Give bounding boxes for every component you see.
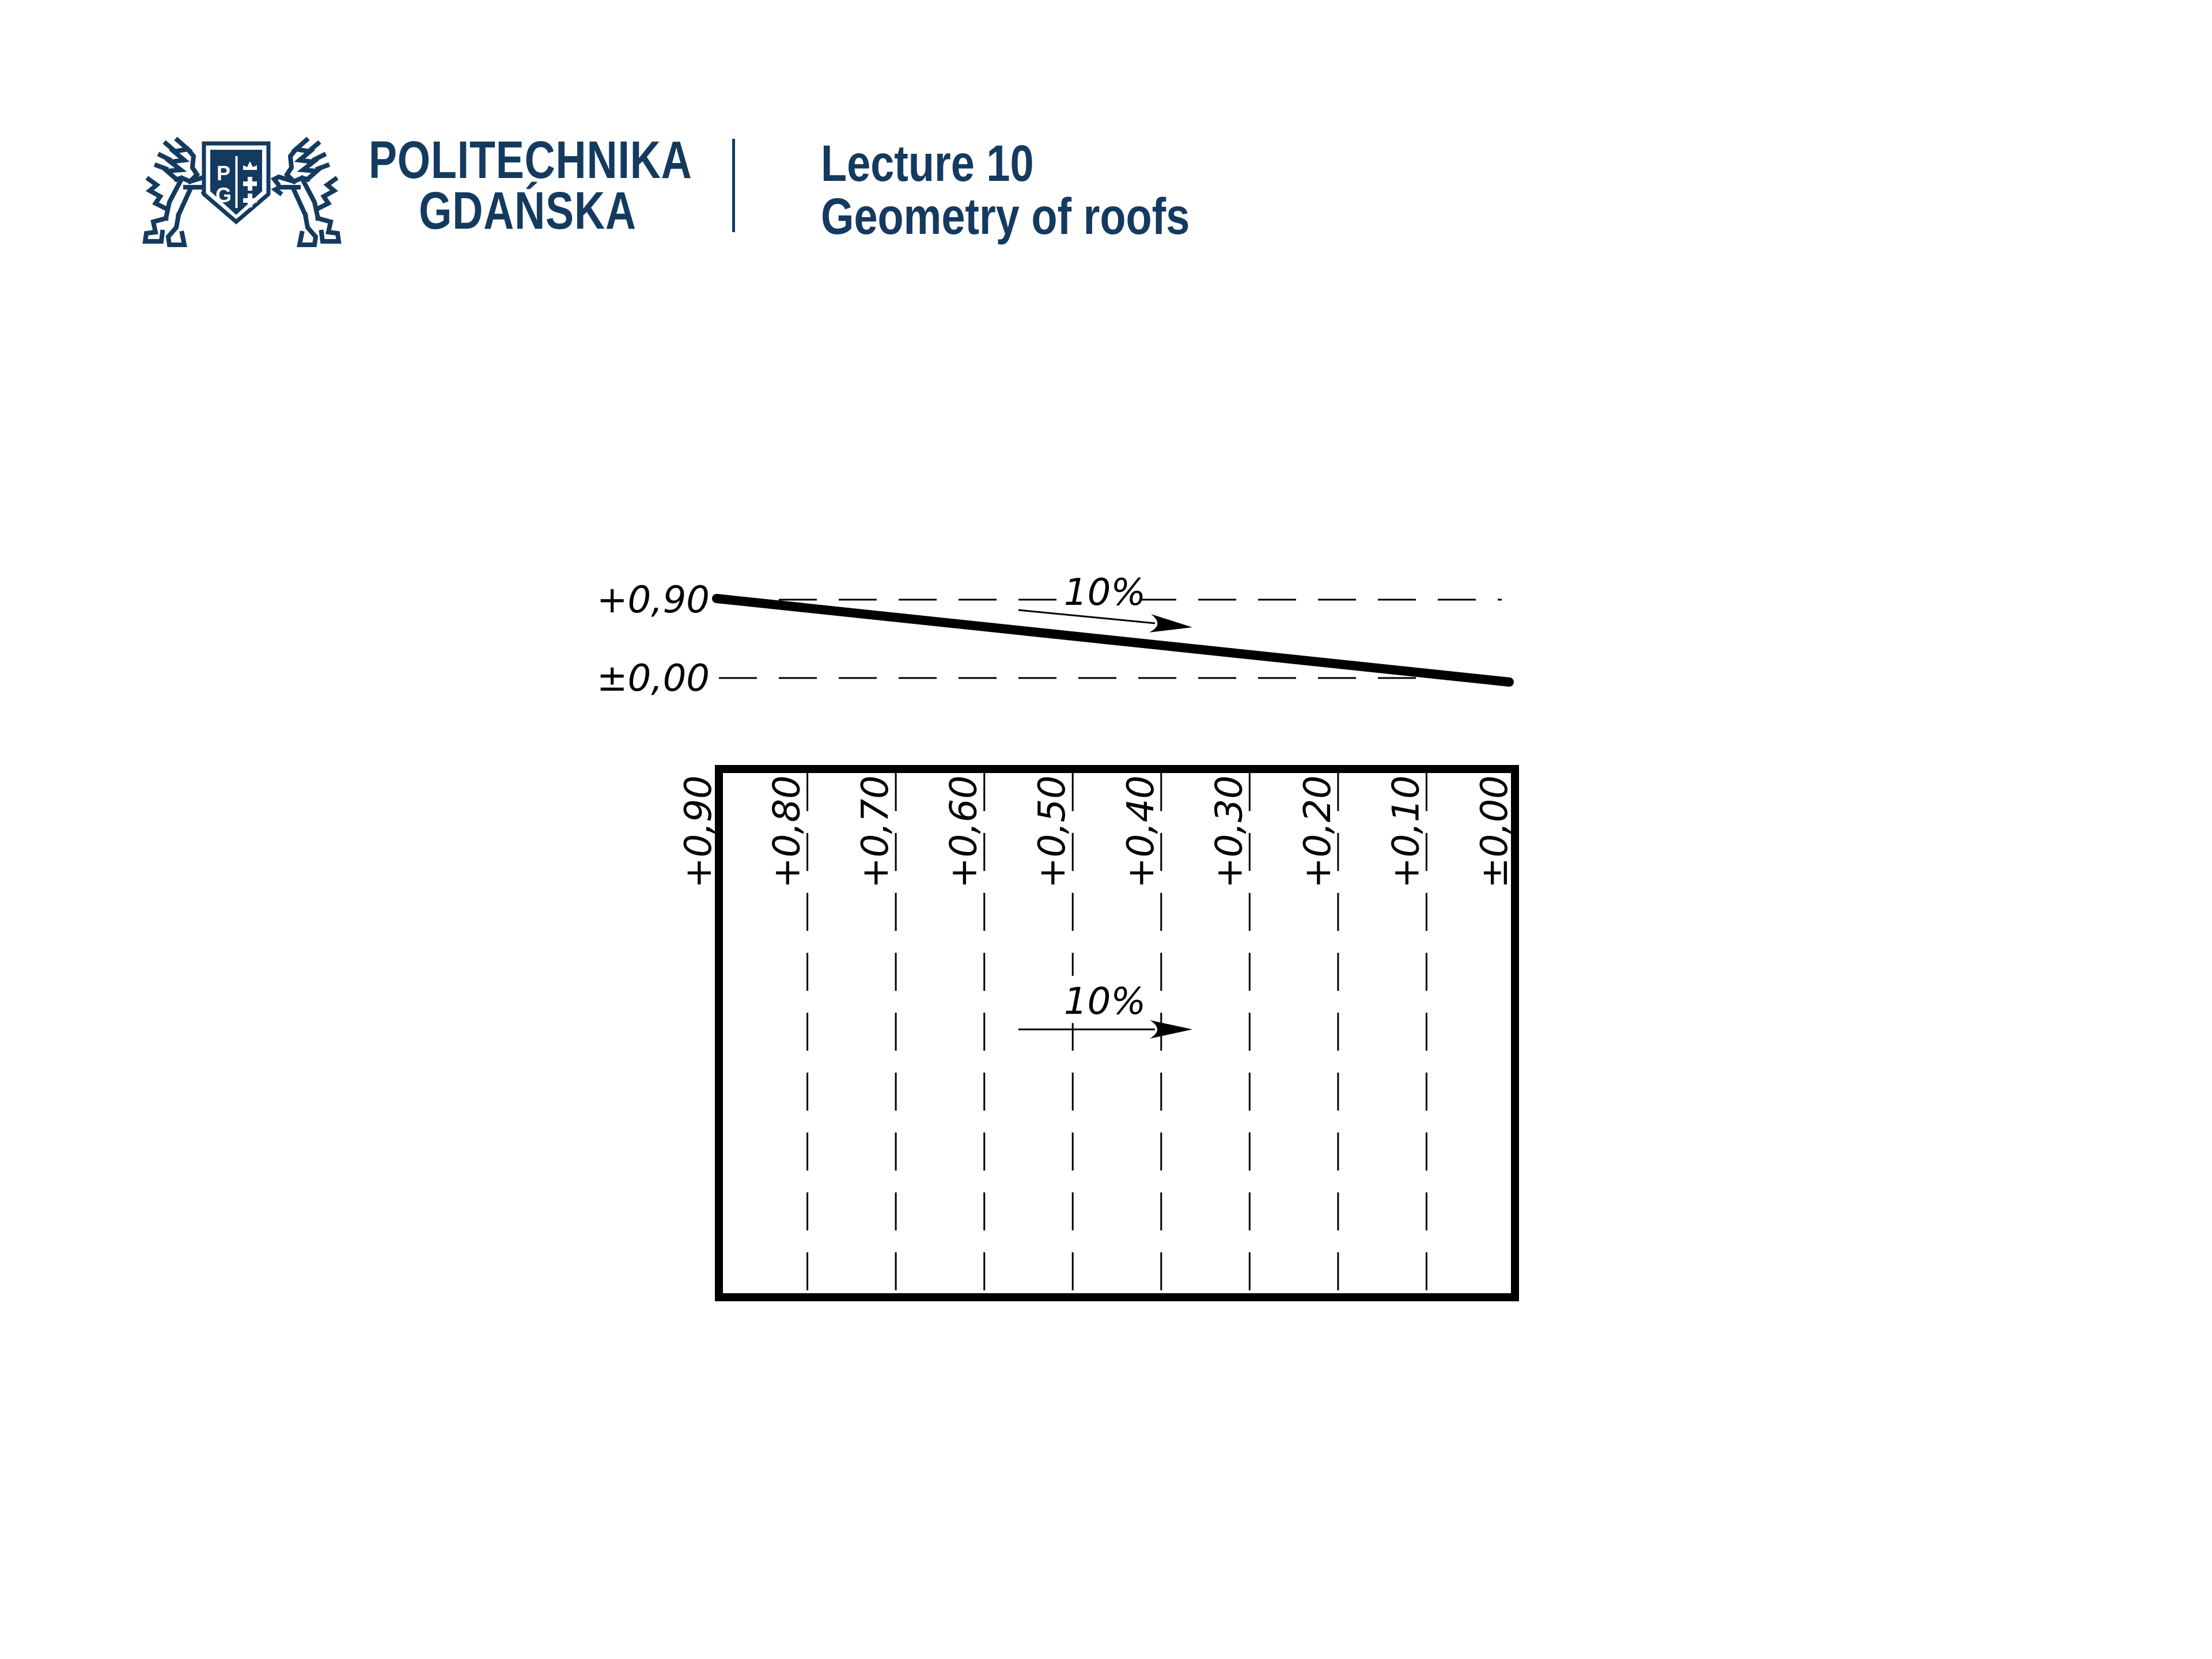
lecture-title: Geometry of roofs bbox=[821, 190, 1190, 243]
plan-slope-label: 10% bbox=[1064, 980, 1146, 1023]
contour-label: +0,70 bbox=[854, 775, 897, 888]
university-name-line1: POLITECHNIKA bbox=[369, 135, 687, 185]
logo-letter-p: P bbox=[217, 161, 230, 185]
logo-letter-g: G bbox=[215, 183, 232, 207]
university-name-line2: GDAŃSKA bbox=[369, 185, 687, 236]
roof-geometry-drawing: +0,90 ±0,00 10% bbox=[576, 553, 1584, 1371]
shield-icon: P G bbox=[204, 143, 268, 222]
university-name: POLITECHNIKA GDAŃSKA bbox=[369, 135, 687, 236]
section-slope-label: 10% bbox=[1064, 571, 1146, 614]
section-lower-level-label: ±0,00 bbox=[597, 657, 710, 700]
lecture-slide: P G POLITECHNIKA GDAŃSKA Lecture 10 Geom… bbox=[0, 0, 2212, 1659]
roof-section-view: +0,90 ±0,00 10% bbox=[597, 569, 1509, 700]
roof-plan-view: +0,90 +0,80 +0,70 +0,60 +0,50 +0,40 +0,3… bbox=[677, 769, 1516, 1297]
contour-label: +0,80 bbox=[766, 775, 809, 888]
contour-label: ±0,00 bbox=[1474, 775, 1516, 888]
contour-label: +0,40 bbox=[1120, 775, 1162, 888]
contour-label: +0,90 bbox=[677, 775, 720, 888]
contour-labels: +0,90 +0,80 +0,70 +0,60 +0,50 +0,40 +0,3… bbox=[677, 775, 1516, 888]
contour-label: +0,60 bbox=[943, 775, 986, 888]
pg-logo: P G bbox=[132, 134, 351, 252]
section-upper-level-label: +0,90 bbox=[597, 579, 710, 622]
lion-right-icon bbox=[274, 140, 339, 245]
lion-left-icon bbox=[145, 140, 210, 245]
header-divider bbox=[732, 139, 735, 232]
contour-label: +0,50 bbox=[1031, 775, 1074, 888]
lecture-number: Lecture 10 bbox=[821, 137, 1190, 190]
contour-label: +0,30 bbox=[1208, 775, 1251, 888]
contour-label: +0,10 bbox=[1385, 775, 1427, 888]
lecture-titles: Lecture 10 Geometry of roofs bbox=[821, 137, 1190, 243]
contour-label: +0,20 bbox=[1297, 775, 1339, 888]
